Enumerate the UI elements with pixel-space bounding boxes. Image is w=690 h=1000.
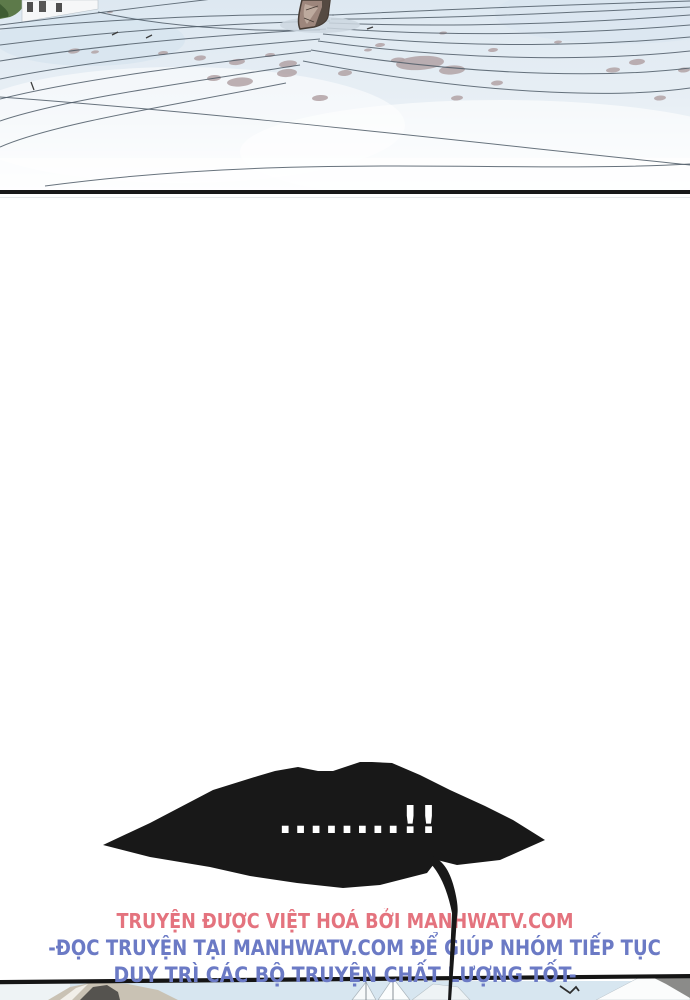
comic-page: TRUYỆN ĐƯỢC VIỆT HOÁ BỞI MANHWATV.COM -Đ… (0, 0, 690, 1000)
panel-divider (0, 190, 690, 194)
speech-bubble-text: ........!! (278, 800, 438, 840)
speech-bubble (0, 745, 690, 1000)
dune-scene-panel (0, 0, 690, 190)
credit-line-2: -ĐỌC TRUYỆN TẠI MANHWATV.COM ĐỂ GIÚP NHÓ… (48, 936, 641, 960)
credit-line-1: TRUYỆN ĐƯỢC VIỆT HOÁ BỞI MANHWATV.COM (41, 909, 648, 933)
panel-divider-shadow (0, 197, 690, 198)
credit-line-3: DUY TRÌ CÁC BỘ TRUYỆN CHẤT LƯỢNG TỐT- (35, 963, 656, 987)
